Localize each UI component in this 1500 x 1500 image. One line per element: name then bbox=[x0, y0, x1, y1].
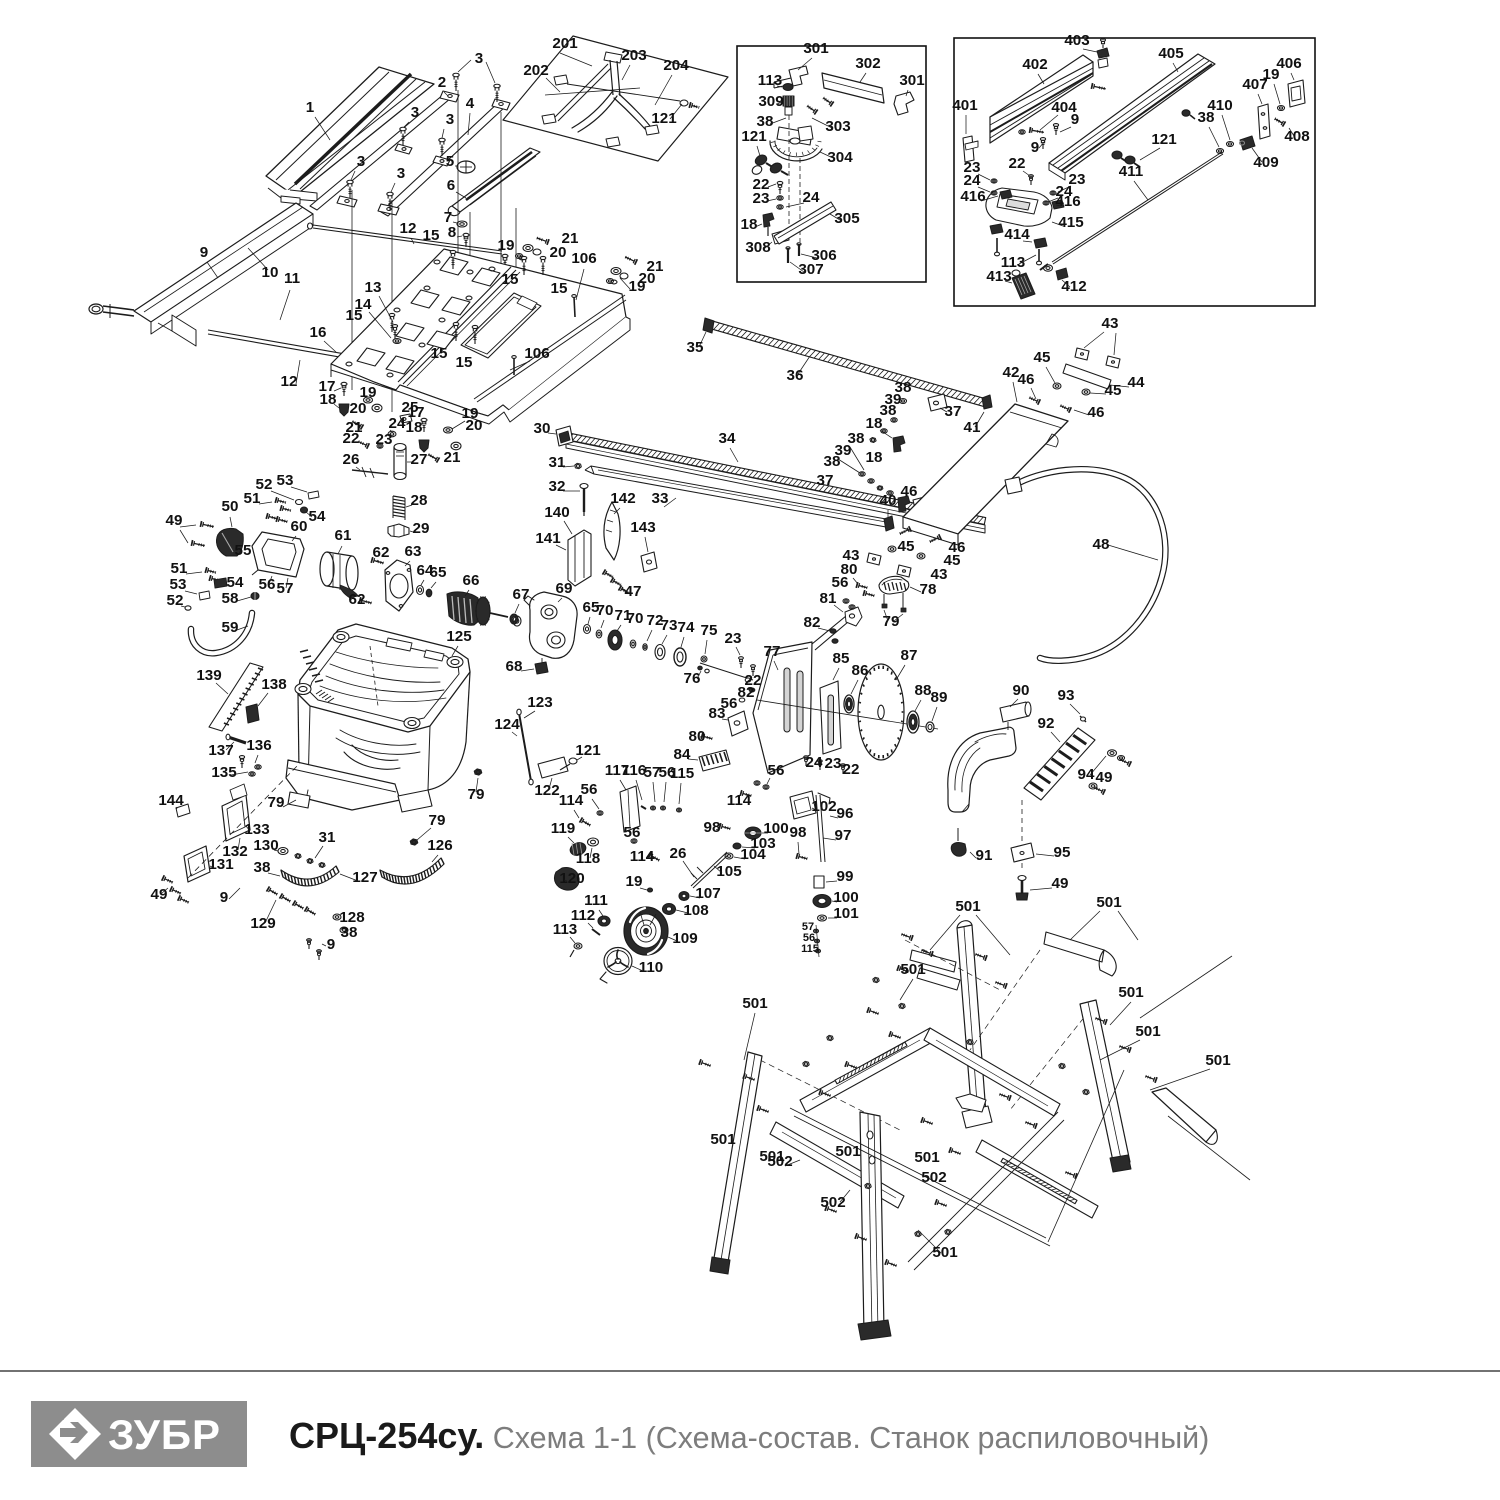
svg-text:38: 38 bbox=[824, 453, 841, 470]
svg-text:21: 21 bbox=[444, 449, 461, 466]
svg-text:301: 301 bbox=[899, 72, 925, 89]
svg-text:56: 56 bbox=[624, 824, 641, 841]
svg-text:202: 202 bbox=[523, 62, 548, 79]
svg-text:49: 49 bbox=[1096, 769, 1113, 786]
svg-text:144: 144 bbox=[158, 792, 184, 809]
svg-text:30: 30 bbox=[534, 420, 551, 437]
svg-text:43: 43 bbox=[1102, 315, 1119, 332]
svg-text:38: 38 bbox=[1198, 109, 1215, 126]
svg-text:24: 24 bbox=[389, 415, 406, 432]
svg-text:20: 20 bbox=[350, 400, 367, 417]
svg-text:124: 124 bbox=[494, 716, 520, 733]
svg-text:67: 67 bbox=[513, 586, 530, 603]
svg-text:51: 51 bbox=[171, 560, 188, 577]
svg-text:106: 106 bbox=[524, 345, 549, 362]
svg-text:501: 501 bbox=[932, 1244, 958, 1261]
svg-text:90: 90 bbox=[1013, 682, 1030, 699]
svg-text:10: 10 bbox=[262, 264, 279, 281]
svg-text:415: 415 bbox=[1058, 214, 1084, 231]
svg-text:56: 56 bbox=[581, 781, 598, 798]
svg-text:120: 120 bbox=[559, 870, 584, 887]
svg-text:52: 52 bbox=[256, 476, 273, 493]
svg-text:401: 401 bbox=[952, 97, 978, 114]
svg-text:9: 9 bbox=[220, 889, 228, 906]
svg-text:98: 98 bbox=[704, 819, 721, 836]
svg-text:405: 405 bbox=[1158, 45, 1184, 62]
svg-text:3: 3 bbox=[475, 50, 483, 67]
svg-text:142: 142 bbox=[610, 490, 635, 507]
svg-text:308: 308 bbox=[745, 239, 770, 256]
svg-text:53: 53 bbox=[277, 472, 294, 489]
svg-text:406: 406 bbox=[1276, 55, 1301, 72]
svg-text:501: 501 bbox=[955, 898, 981, 915]
svg-text:88: 88 bbox=[915, 682, 932, 699]
svg-text:501: 501 bbox=[1205, 1052, 1231, 1069]
svg-text:46: 46 bbox=[901, 483, 918, 500]
svg-text:57: 57 bbox=[277, 580, 294, 597]
svg-text:3: 3 bbox=[397, 165, 405, 182]
svg-text:106: 106 bbox=[571, 250, 596, 267]
svg-text:74: 74 bbox=[678, 619, 695, 636]
svg-text:15: 15 bbox=[502, 271, 519, 288]
svg-text:44: 44 bbox=[1128, 374, 1145, 391]
svg-text:60: 60 bbox=[291, 518, 308, 535]
svg-text:77: 77 bbox=[764, 643, 781, 660]
svg-text:402: 402 bbox=[1022, 56, 1047, 73]
svg-text:85: 85 bbox=[833, 650, 850, 667]
svg-text:34: 34 bbox=[719, 430, 736, 447]
svg-text:137: 137 bbox=[208, 742, 233, 759]
svg-text:15: 15 bbox=[551, 280, 568, 297]
svg-text:416: 416 bbox=[960, 188, 985, 205]
svg-text:24: 24 bbox=[806, 754, 823, 771]
svg-text:91: 91 bbox=[976, 847, 993, 864]
svg-text:45: 45 bbox=[898, 538, 915, 555]
svg-text:107: 107 bbox=[695, 885, 720, 902]
svg-text:110: 110 bbox=[639, 959, 664, 976]
svg-text:79: 79 bbox=[429, 812, 446, 829]
svg-text:52: 52 bbox=[167, 592, 184, 609]
svg-text:138: 138 bbox=[261, 676, 286, 693]
svg-text:1: 1 bbox=[306, 99, 315, 116]
svg-text:58: 58 bbox=[222, 590, 239, 607]
svg-text:92: 92 bbox=[1038, 715, 1055, 732]
svg-text:127: 127 bbox=[352, 869, 377, 886]
svg-text:78: 78 bbox=[920, 581, 937, 598]
svg-text:136: 136 bbox=[246, 737, 271, 754]
svg-text:501: 501 bbox=[835, 1143, 861, 1160]
svg-text:100: 100 bbox=[833, 889, 858, 906]
svg-text:201: 201 bbox=[552, 35, 578, 52]
svg-text:302: 302 bbox=[855, 55, 880, 72]
svg-text:45: 45 bbox=[1105, 382, 1122, 399]
svg-text:407: 407 bbox=[1242, 76, 1267, 93]
svg-text:501: 501 bbox=[1096, 894, 1122, 911]
svg-text:23: 23 bbox=[753, 190, 770, 207]
svg-text:28: 28 bbox=[411, 492, 428, 509]
svg-text:16: 16 bbox=[310, 324, 327, 341]
svg-text:54: 54 bbox=[227, 574, 244, 591]
svg-text:50: 50 bbox=[222, 498, 239, 515]
svg-text:14: 14 bbox=[355, 296, 372, 313]
svg-text:12: 12 bbox=[400, 220, 417, 237]
svg-text:19: 19 bbox=[498, 237, 515, 254]
svg-text:135: 135 bbox=[211, 764, 237, 781]
svg-text:11: 11 bbox=[284, 270, 301, 287]
svg-text:98: 98 bbox=[790, 824, 807, 841]
svg-text:37: 37 bbox=[817, 472, 834, 489]
svg-text:79: 79 bbox=[883, 613, 900, 630]
svg-text:38: 38 bbox=[254, 859, 271, 876]
svg-text:3: 3 bbox=[357, 153, 365, 170]
svg-text:37: 37 bbox=[945, 403, 962, 420]
svg-text:48: 48 bbox=[1093, 536, 1110, 553]
svg-text:СРЦ-254су. Схема 1-1 (Схема-со: СРЦ-254су. Схема 1-1 (Схема-состав. Стан… bbox=[289, 1415, 1209, 1456]
svg-text:18: 18 bbox=[320, 391, 337, 408]
svg-text:501: 501 bbox=[710, 1131, 736, 1148]
svg-text:115: 115 bbox=[670, 765, 695, 782]
svg-text:21: 21 bbox=[647, 258, 664, 275]
svg-text:125: 125 bbox=[446, 628, 472, 645]
svg-text:139: 139 bbox=[196, 667, 221, 684]
svg-text:94: 94 bbox=[1078, 766, 1095, 783]
svg-text:22: 22 bbox=[343, 430, 360, 447]
svg-text:307: 307 bbox=[798, 261, 823, 278]
svg-text:143: 143 bbox=[630, 519, 655, 536]
svg-text:18: 18 bbox=[406, 419, 423, 436]
svg-text:70: 70 bbox=[627, 610, 644, 627]
svg-text:59: 59 bbox=[222, 619, 239, 636]
svg-text:15: 15 bbox=[423, 227, 440, 244]
svg-text:18: 18 bbox=[741, 216, 758, 233]
svg-text:3: 3 bbox=[411, 104, 419, 121]
svg-text:62: 62 bbox=[349, 591, 366, 608]
svg-text:49: 49 bbox=[151, 886, 168, 903]
svg-text:19: 19 bbox=[626, 873, 643, 890]
svg-text:24: 24 bbox=[964, 172, 981, 189]
svg-text:18: 18 bbox=[866, 449, 883, 466]
svg-text:68: 68 bbox=[506, 658, 523, 675]
svg-text:27: 27 bbox=[411, 451, 428, 468]
svg-text:204: 204 bbox=[663, 57, 689, 74]
svg-text:66: 66 bbox=[463, 572, 480, 589]
svg-text:408: 408 bbox=[1284, 128, 1309, 145]
svg-text:87: 87 bbox=[901, 647, 918, 664]
svg-text:4: 4 bbox=[466, 95, 475, 112]
svg-text:23: 23 bbox=[725, 630, 742, 647]
svg-text:501: 501 bbox=[1135, 1023, 1161, 1040]
svg-text:114: 114 bbox=[727, 792, 752, 809]
svg-text:20: 20 bbox=[466, 417, 483, 434]
svg-text:301: 301 bbox=[803, 40, 829, 57]
svg-text:79: 79 bbox=[268, 794, 285, 811]
svg-text:93: 93 bbox=[1058, 687, 1075, 704]
svg-text:123: 123 bbox=[527, 694, 552, 711]
svg-text:121: 121 bbox=[1151, 131, 1177, 148]
svg-text:31: 31 bbox=[549, 454, 566, 471]
svg-text:12: 12 bbox=[281, 373, 298, 390]
svg-text:113: 113 bbox=[553, 921, 578, 938]
svg-text:29: 29 bbox=[413, 520, 430, 537]
svg-text:9: 9 bbox=[1031, 139, 1039, 156]
svg-text:8: 8 bbox=[448, 224, 456, 241]
svg-text:73: 73 bbox=[661, 617, 678, 634]
svg-text:99: 99 bbox=[837, 868, 854, 885]
svg-text:46: 46 bbox=[1018, 371, 1035, 388]
svg-text:49: 49 bbox=[1052, 875, 1069, 892]
svg-text:121: 121 bbox=[741, 128, 767, 145]
svg-text:18: 18 bbox=[866, 415, 883, 432]
svg-text:33: 33 bbox=[652, 490, 669, 507]
svg-text:70: 70 bbox=[597, 602, 614, 619]
svg-text:31: 31 bbox=[319, 829, 336, 846]
svg-text:5: 5 bbox=[446, 153, 455, 170]
svg-text:501: 501 bbox=[1118, 984, 1144, 1001]
svg-text:3: 3 bbox=[446, 111, 454, 128]
svg-text:502: 502 bbox=[767, 1153, 792, 1170]
svg-text:118: 118 bbox=[576, 850, 601, 867]
svg-text:502: 502 bbox=[820, 1194, 845, 1211]
svg-text:21: 21 bbox=[562, 230, 579, 247]
svg-text:95: 95 bbox=[1054, 844, 1071, 861]
svg-text:309: 309 bbox=[758, 93, 783, 110]
svg-text:413: 413 bbox=[986, 268, 1011, 285]
svg-text:119: 119 bbox=[551, 820, 576, 837]
svg-text:97: 97 bbox=[835, 827, 852, 844]
svg-text:109: 109 bbox=[672, 930, 697, 947]
svg-text:414: 414 bbox=[1004, 226, 1030, 243]
svg-text:23: 23 bbox=[825, 755, 842, 772]
svg-text:26: 26 bbox=[670, 845, 687, 862]
svg-text:9: 9 bbox=[1071, 111, 1079, 128]
svg-text:129: 129 bbox=[250, 915, 275, 932]
svg-text:49: 49 bbox=[166, 512, 183, 529]
svg-text:40: 40 bbox=[880, 492, 897, 509]
svg-text:104: 104 bbox=[740, 846, 766, 863]
svg-text:89: 89 bbox=[931, 689, 948, 706]
svg-text:56: 56 bbox=[259, 576, 276, 593]
svg-text:ЗУБР: ЗУБР bbox=[108, 1411, 221, 1458]
svg-text:23: 23 bbox=[376, 431, 393, 448]
svg-text:416: 416 bbox=[1055, 193, 1080, 210]
svg-text:84: 84 bbox=[674, 746, 691, 763]
svg-text:69: 69 bbox=[556, 580, 573, 597]
svg-text:24: 24 bbox=[803, 189, 820, 206]
svg-text:501: 501 bbox=[742, 995, 768, 1012]
svg-text:133: 133 bbox=[244, 821, 269, 838]
svg-text:203: 203 bbox=[621, 47, 646, 64]
svg-text:115: 115 bbox=[801, 943, 819, 955]
svg-text:61: 61 bbox=[335, 527, 352, 544]
svg-text:42: 42 bbox=[1003, 364, 1020, 381]
svg-text:101: 101 bbox=[833, 905, 859, 922]
svg-text:22: 22 bbox=[1009, 155, 1026, 172]
svg-text:32: 32 bbox=[549, 478, 566, 495]
svg-text:9: 9 bbox=[327, 936, 335, 953]
svg-text:56: 56 bbox=[721, 695, 738, 712]
svg-text:82: 82 bbox=[804, 614, 821, 631]
svg-text:409: 409 bbox=[1253, 154, 1278, 171]
svg-text:22: 22 bbox=[843, 761, 860, 778]
svg-text:501: 501 bbox=[900, 961, 926, 978]
svg-text:38: 38 bbox=[341, 924, 358, 941]
svg-text:76: 76 bbox=[684, 670, 701, 687]
svg-text:126: 126 bbox=[427, 837, 452, 854]
svg-text:65: 65 bbox=[430, 564, 447, 581]
svg-text:131: 131 bbox=[208, 856, 234, 873]
svg-text:502: 502 bbox=[921, 1169, 946, 1186]
svg-text:2: 2 bbox=[438, 74, 446, 91]
svg-text:79: 79 bbox=[468, 786, 485, 803]
svg-text:6: 6 bbox=[447, 177, 455, 194]
svg-text:122: 122 bbox=[534, 782, 559, 799]
svg-text:96: 96 bbox=[837, 805, 854, 822]
svg-text:412: 412 bbox=[1061, 278, 1086, 295]
svg-text:15: 15 bbox=[456, 354, 473, 371]
svg-text:45: 45 bbox=[1034, 349, 1051, 366]
svg-text:15: 15 bbox=[431, 345, 448, 362]
svg-text:26: 26 bbox=[343, 451, 360, 468]
svg-text:55: 55 bbox=[235, 542, 252, 559]
svg-text:53: 53 bbox=[170, 576, 187, 593]
svg-text:63: 63 bbox=[405, 543, 422, 560]
svg-text:501: 501 bbox=[914, 1149, 940, 1166]
svg-text:140: 140 bbox=[544, 504, 569, 521]
svg-text:19: 19 bbox=[360, 384, 377, 401]
svg-text:121: 121 bbox=[575, 742, 601, 759]
svg-text:62: 62 bbox=[373, 544, 390, 561]
svg-text:121: 121 bbox=[651, 110, 677, 127]
svg-text:102: 102 bbox=[811, 798, 836, 815]
svg-text:411: 411 bbox=[1119, 163, 1144, 180]
svg-text:82: 82 bbox=[738, 684, 755, 701]
svg-text:75: 75 bbox=[701, 622, 718, 639]
svg-text:46: 46 bbox=[1088, 404, 1105, 421]
svg-text:56: 56 bbox=[768, 762, 785, 779]
svg-text:108: 108 bbox=[683, 902, 708, 919]
svg-text:403: 403 bbox=[1064, 32, 1089, 49]
svg-text:141: 141 bbox=[535, 530, 561, 547]
svg-text:56: 56 bbox=[832, 574, 849, 591]
svg-text:13: 13 bbox=[365, 279, 382, 296]
svg-text:130: 130 bbox=[253, 837, 278, 854]
svg-text:81: 81 bbox=[820, 590, 837, 607]
svg-text:9: 9 bbox=[200, 244, 208, 261]
svg-text:114: 114 bbox=[630, 848, 655, 865]
